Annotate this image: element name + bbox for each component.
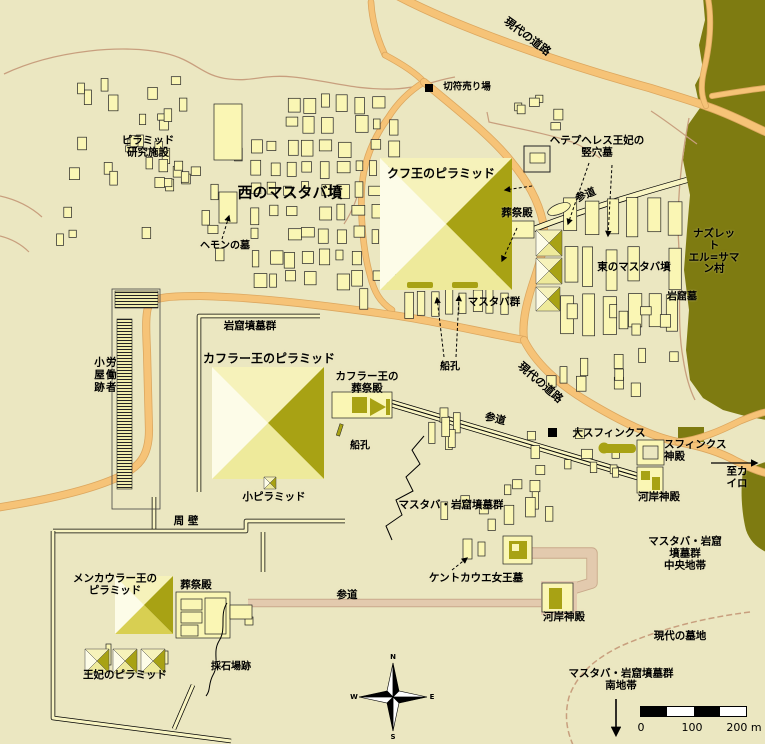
scale-bar-segments: [640, 706, 747, 717]
map-canvas: [0, 0, 765, 744]
compass-rose-icon: [353, 657, 433, 737]
compass-south-label: S: [390, 733, 395, 741]
giza-map: 現代の道路切符売り場ピラミッド 研究施設西のマスタバ墳クフ王のピラミッドヘテプヘ…: [0, 0, 765, 744]
compass-west-label: W: [350, 693, 358, 701]
compass-east-label: E: [430, 693, 435, 701]
scale-tick-200: 200 m: [726, 721, 761, 734]
scale-tick-100: 100: [682, 721, 703, 734]
scale-bar: 0 100 200 m: [640, 706, 746, 738]
compass-north-label: N: [390, 653, 396, 661]
scale-tick-0: 0: [638, 721, 645, 734]
